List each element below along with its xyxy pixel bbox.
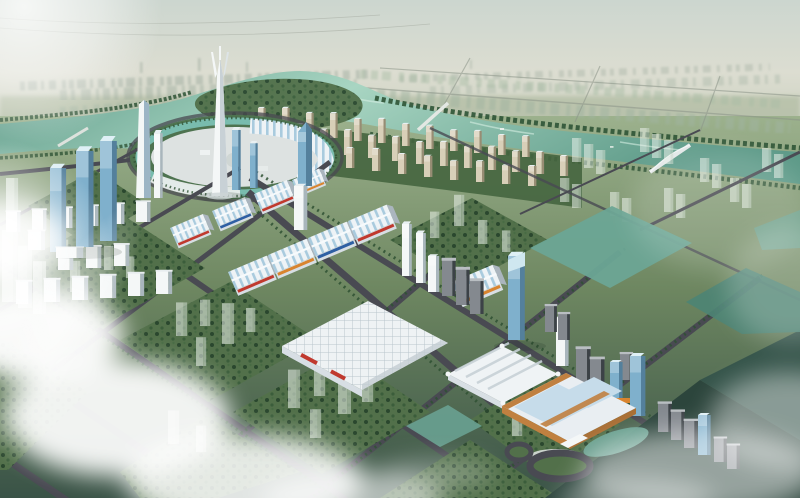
ghost-building	[200, 300, 210, 326]
residential-tower	[476, 160, 484, 182]
residential-tower	[346, 147, 354, 168]
residential-tower	[498, 134, 506, 155]
boat	[500, 128, 504, 130]
dark-slab	[470, 278, 484, 314]
residential-tower	[522, 135, 530, 157]
ghost-building	[584, 144, 593, 168]
aerial-rendering: Aerial master-plan rendering of a rivers…	[0, 0, 800, 498]
white-slab	[156, 270, 173, 294]
dark-slab	[545, 304, 558, 332]
rendering-canvas: Aerial master-plan rendering of a rivers…	[0, 0, 800, 498]
ghost-building	[652, 134, 661, 158]
white-slab	[128, 272, 145, 296]
spire-prong	[219, 46, 221, 60]
ghost-building	[430, 212, 439, 238]
ghost-building	[176, 302, 187, 336]
residential-tower	[502, 164, 510, 184]
ghost-building	[502, 230, 510, 252]
ghost-building	[196, 337, 206, 366]
ghost-building	[288, 370, 300, 408]
residential-tower	[354, 118, 362, 141]
dark-slab	[558, 312, 571, 340]
plaza-tower	[250, 141, 258, 188]
residential-tower	[450, 160, 458, 180]
white-tower	[402, 221, 412, 276]
residential-tower	[560, 155, 568, 176]
residential-tower	[372, 148, 380, 171]
ghost-building	[246, 308, 255, 332]
dark-slab	[576, 346, 591, 382]
ghost-building	[572, 138, 581, 162]
residential-tower	[330, 112, 338, 138]
dark-slab	[442, 258, 456, 296]
ghost-building	[596, 150, 605, 174]
plaza-tower	[232, 127, 241, 190]
residential-tower	[536, 151, 544, 174]
dark-slab	[456, 267, 470, 305]
ghost-building	[310, 409, 321, 438]
residential-tower	[378, 118, 386, 143]
residential-tower	[424, 155, 432, 177]
residential-tower	[416, 141, 424, 164]
curved-top-tower	[298, 122, 312, 186]
residential-tower	[464, 145, 472, 168]
ghost-building	[478, 220, 487, 244]
plaza-tower	[294, 184, 307, 230]
residential-tower	[440, 141, 448, 166]
boat	[610, 146, 614, 148]
ghost-building	[454, 195, 464, 226]
plaza-tower	[154, 130, 163, 198]
residential-tower	[398, 153, 406, 174]
ghost-building	[640, 128, 649, 152]
white-tower	[428, 254, 439, 292]
residential-tower	[402, 123, 410, 146]
white-tower	[416, 231, 426, 284]
dark-slab	[658, 401, 672, 432]
cloud	[378, 458, 494, 490]
ghost-building	[222, 303, 234, 344]
